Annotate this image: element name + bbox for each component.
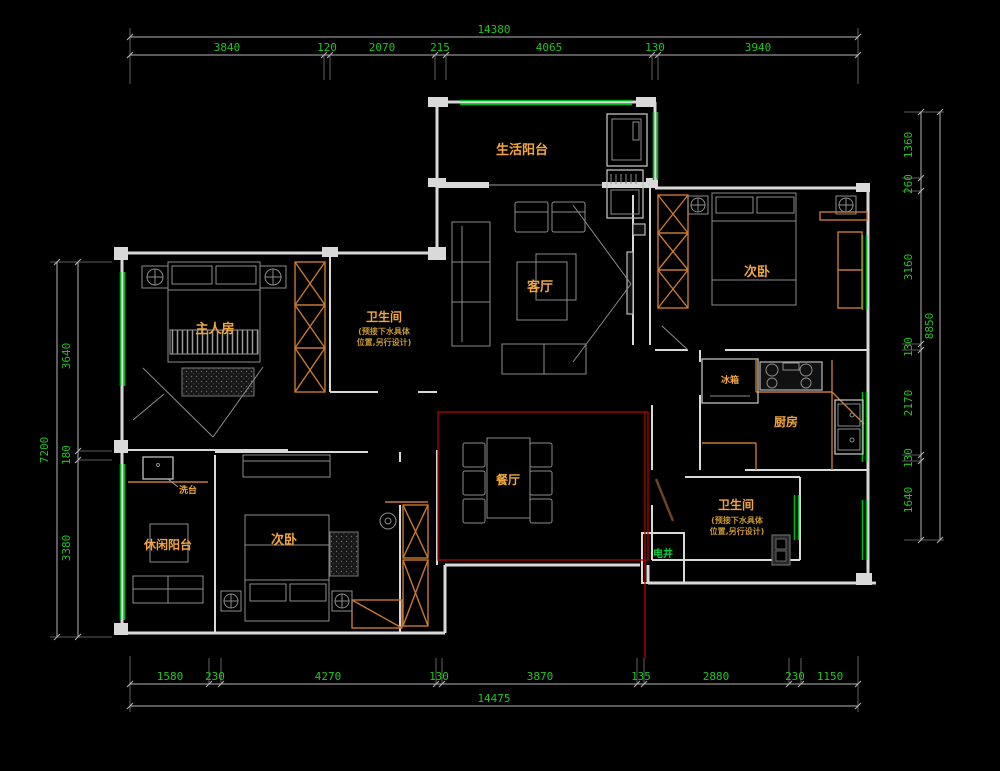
dim-top-seg: 120 [317, 41, 337, 54]
room-label-master-bedroom: 主人房 [195, 321, 234, 337]
label-fridge: 冰箱 [721, 374, 739, 386]
dim-bottom-total: 14475 [477, 692, 510, 705]
dim-bottom-seg: 135 [631, 670, 651, 683]
leisure-balcony-furniture [133, 457, 203, 603]
dim-top-seg: 215 [430, 41, 450, 54]
bathroom-bottom-note-line2: 位置,另行设计) [710, 526, 765, 536]
dimension-text-bottom: 1580 230 4270 130 3870 135 2880 230 1150… [157, 670, 844, 705]
room-label-living-room: 客厅 [527, 279, 553, 295]
dim-bottom-seg: 230 [205, 670, 225, 683]
room-label-bathroom-top: 卫生间 [366, 309, 402, 324]
dim-right-seg: 2170 [902, 390, 915, 417]
label-wash-counter: 洗台 [179, 484, 197, 496]
dim-right-seg: 3160 [902, 254, 915, 281]
stove [760, 362, 822, 390]
room-label-bedroom-bottom: 次卧 [271, 532, 297, 548]
dim-top-seg: 130 [645, 41, 665, 54]
room-label-electric-shaft: 电井 [653, 547, 673, 560]
room-label-dining-room: 餐厅 [496, 472, 520, 487]
dim-right-seg: 130 [902, 448, 915, 468]
dim-top-seg: 2070 [369, 41, 396, 54]
bathroom-top-note-line1: (预接下水具体 [358, 326, 411, 336]
dim-right-total: 8850 [923, 313, 936, 340]
room-label-bathroom-bottom: 卫生间 [718, 497, 754, 512]
dining-furniture [380, 438, 552, 529]
dim-bottom-seg: 230 [785, 670, 805, 683]
red-highlight [438, 412, 648, 658]
dimension-text-right: 1360 260 3160 130 2170 130 1640 8850 [902, 132, 936, 514]
dim-bottom-seg: 1580 [157, 670, 184, 683]
dim-right-seg: 130 [902, 337, 915, 357]
laundry-appliances [607, 114, 647, 235]
dim-bottom-seg: 1150 [817, 670, 844, 683]
dim-top-seg: 3840 [214, 41, 241, 54]
dim-left-seg: 3380 [60, 535, 73, 562]
room-label-life-balcony: 生活阳台 [496, 142, 548, 158]
room-label-kitchen: 厨房 [774, 414, 798, 429]
cad-floorplan-viewport: 14380 3840 120 2070 215 4065 130 3940 15… [0, 0, 1000, 771]
dim-bottom-seg: 4270 [315, 670, 342, 683]
kitchen-appliances [702, 359, 863, 454]
dim-bottom-seg: 2880 [703, 670, 730, 683]
dim-top-seg: 3940 [745, 41, 772, 54]
bathroom-bottom-note-line1: (预接下水具体 [711, 515, 764, 525]
dimension-text-top: 14380 3840 120 2070 215 4065 130 3940 [214, 23, 772, 54]
dim-bottom-seg: 3870 [527, 670, 554, 683]
dim-right-seg: 260 [902, 174, 915, 194]
dimension-text-left: 3640 180 3380 7200 [38, 343, 73, 562]
master-bedroom-furniture [133, 262, 286, 437]
dim-left-seg: 180 [60, 445, 73, 465]
dim-right-seg: 1640 [902, 487, 915, 514]
dim-top-total: 14380 [477, 23, 510, 36]
room-label-leisure-balcony: 休闲阳台 [143, 537, 192, 552]
dim-right-seg: 1360 [902, 132, 915, 159]
dim-bottom-seg: 130 [429, 670, 449, 683]
dim-left-total: 7200 [38, 437, 51, 464]
dim-top-seg: 4065 [536, 41, 563, 54]
windows [121, 101, 867, 621]
room-label-bedroom-right: 次卧 [744, 264, 770, 280]
floorplan-canvas: 14380 3840 120 2070 215 4065 130 3940 15… [0, 0, 1000, 771]
bathroom-top-note-line2: 位置,另行设计) [357, 337, 412, 347]
dim-left-seg: 3640 [60, 343, 73, 370]
